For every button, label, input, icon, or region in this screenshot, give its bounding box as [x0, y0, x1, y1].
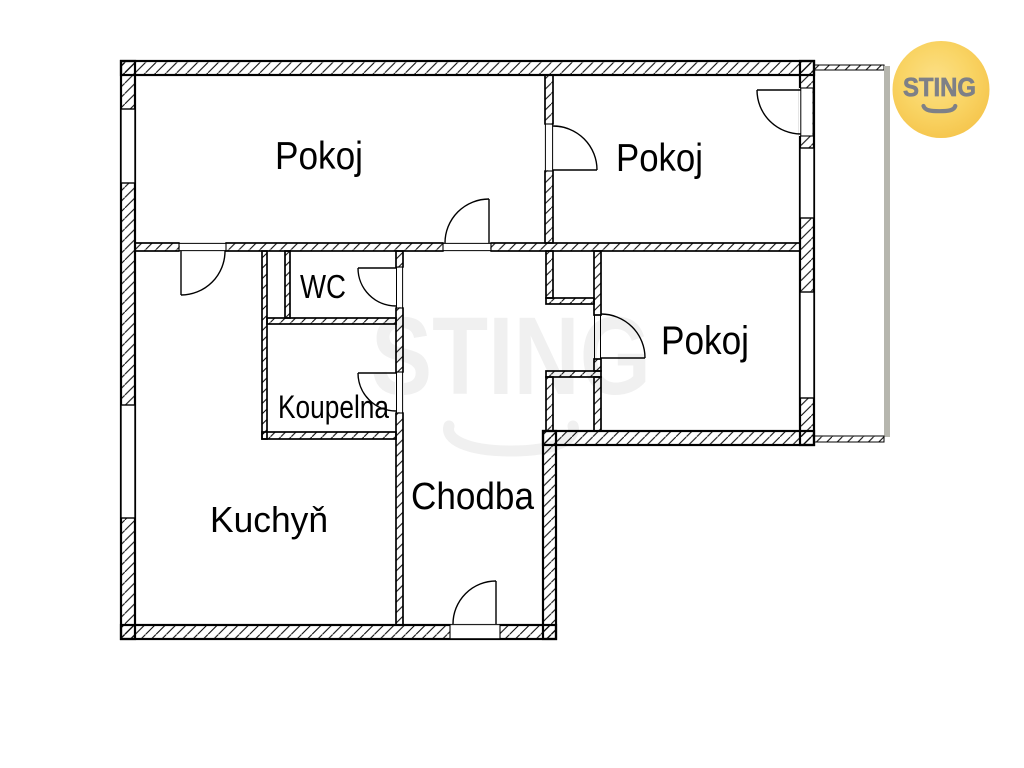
svg-text:STING: STING — [371, 295, 651, 418]
svg-text:Pokoj: Pokoj — [616, 137, 703, 180]
svg-text:WC: WC — [300, 268, 346, 305]
svg-text:Chodba: Chodba — [411, 476, 535, 518]
svg-text:Pokoj: Pokoj — [275, 135, 363, 178]
svg-text:Koupelna: Koupelna — [278, 389, 389, 425]
svg-text:Kuchyň: Kuchyň — [210, 499, 328, 540]
svg-text:STING: STING — [903, 72, 976, 102]
svg-text:Pokoj: Pokoj — [661, 319, 749, 363]
